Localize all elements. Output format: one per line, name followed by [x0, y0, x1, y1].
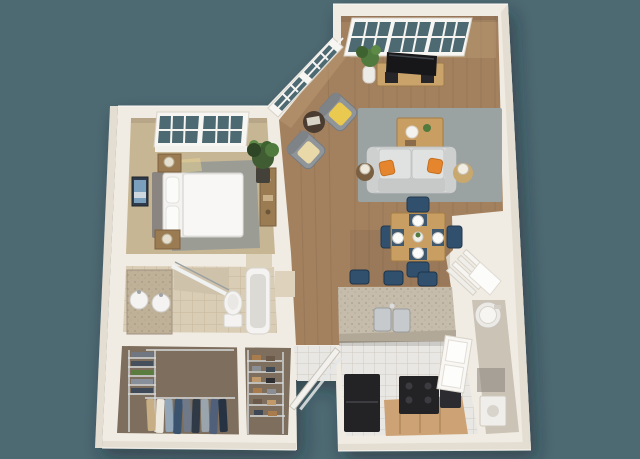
folded-clothes	[131, 370, 153, 375]
shoes	[268, 411, 277, 416]
side-table-left	[356, 163, 374, 181]
shoes	[266, 378, 275, 383]
accent-pillow	[379, 160, 396, 177]
shoes	[266, 367, 275, 372]
hanging-clothes	[145, 398, 235, 434]
shoes	[253, 399, 262, 404]
shoes	[267, 389, 276, 394]
table-lamp	[164, 157, 174, 167]
wall-art	[132, 177, 148, 206]
toilet	[224, 291, 242, 327]
shoes	[266, 356, 275, 361]
shoes	[252, 377, 261, 382]
folded-clothes	[131, 388, 153, 393]
headboard	[152, 172, 164, 238]
pillow	[166, 206, 179, 232]
pillow	[166, 177, 179, 203]
shoes	[267, 400, 276, 405]
bathtub	[246, 268, 270, 334]
faucet	[159, 293, 163, 297]
plate	[413, 248, 424, 259]
centerpiece-plant	[416, 233, 421, 238]
shoes	[252, 366, 261, 371]
floorplan-render	[0, 0, 640, 459]
shoes	[253, 388, 262, 393]
plate	[413, 216, 424, 227]
folded-clothes	[131, 379, 153, 384]
washer	[480, 396, 506, 426]
window-sill	[155, 146, 247, 152]
counter-shadow	[339, 341, 457, 346]
tv	[386, 52, 437, 76]
floorplan-screenshot	[0, 0, 640, 459]
round-table	[303, 111, 325, 133]
sofa	[367, 147, 456, 193]
bedroom-door-opening	[246, 254, 272, 268]
duvet	[183, 174, 243, 236]
shoes	[254, 410, 263, 415]
bathroom-door-opening	[275, 271, 295, 297]
bar-stools	[350, 270, 437, 286]
accent-pillow	[427, 158, 443, 174]
range	[399, 376, 439, 414]
breakfast-bar	[338, 287, 456, 343]
faucet	[390, 304, 395, 309]
side-table-right	[453, 163, 473, 183]
table-lamp	[162, 234, 172, 244]
water-heater	[475, 302, 501, 328]
folded-clothes	[131, 361, 153, 366]
plate	[393, 233, 404, 244]
shoes	[252, 355, 261, 360]
plate	[433, 233, 444, 244]
bedroom-window	[154, 112, 249, 152]
faucet	[137, 290, 141, 294]
refrigerator	[344, 374, 380, 432]
folded-clothes	[131, 352, 153, 357]
dining-table	[391, 213, 445, 261]
vanity	[127, 270, 172, 334]
utility-shelf	[477, 368, 505, 392]
